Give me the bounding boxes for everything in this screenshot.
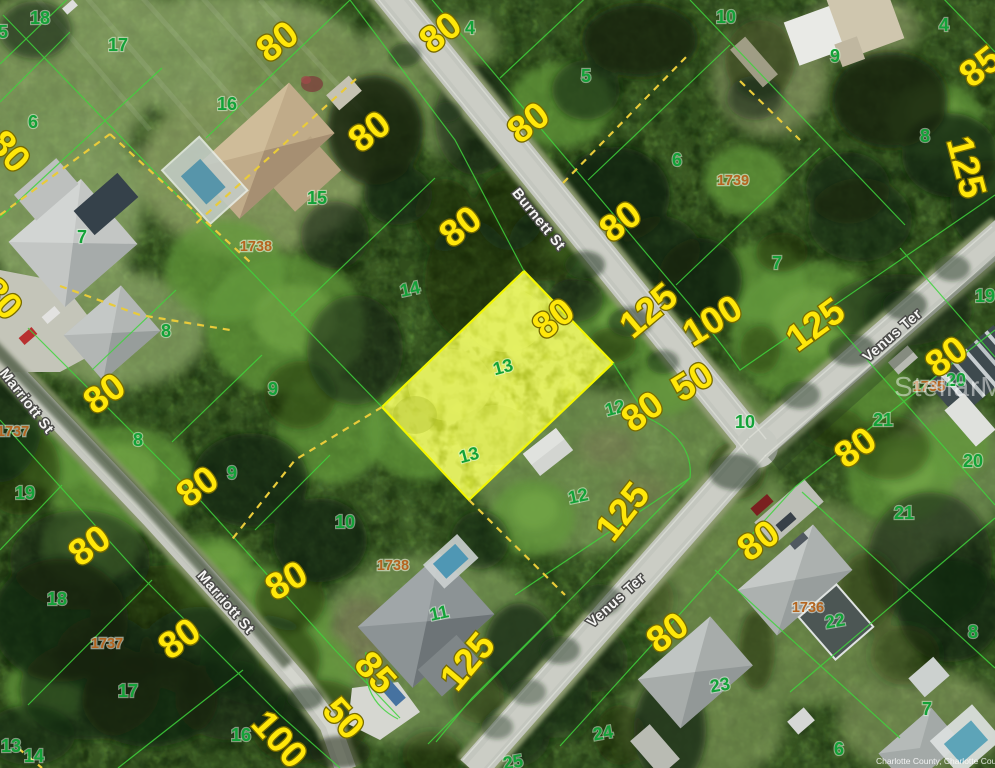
svg-text:8: 8 bbox=[920, 126, 930, 146]
svg-text:10: 10 bbox=[335, 512, 355, 532]
svg-text:5: 5 bbox=[0, 22, 8, 42]
svg-text:19: 19 bbox=[975, 286, 995, 306]
svg-text:9: 9 bbox=[830, 46, 840, 66]
svg-text:11: 11 bbox=[428, 601, 451, 625]
svg-text:8: 8 bbox=[133, 430, 143, 450]
svg-text:9: 9 bbox=[227, 463, 237, 483]
svg-text:StellarMLS: StellarMLS bbox=[894, 371, 995, 402]
svg-text:Charlotte County, Charlotte Co: Charlotte County, Charlotte County, GIS bbox=[876, 756, 995, 766]
svg-text:24: 24 bbox=[591, 721, 614, 744]
svg-text:7: 7 bbox=[772, 253, 782, 273]
svg-text:14: 14 bbox=[398, 277, 422, 301]
svg-text:7: 7 bbox=[77, 227, 87, 247]
svg-text:17: 17 bbox=[118, 681, 138, 701]
svg-text:1737: 1737 bbox=[0, 424, 29, 440]
svg-text:15: 15 bbox=[307, 188, 327, 208]
svg-text:17: 17 bbox=[108, 35, 128, 55]
svg-text:23: 23 bbox=[708, 673, 731, 696]
svg-text:25: 25 bbox=[501, 750, 524, 768]
svg-text:18: 18 bbox=[47, 589, 67, 609]
svg-text:16: 16 bbox=[217, 94, 237, 114]
svg-text:1738: 1738 bbox=[377, 558, 409, 574]
svg-text:4: 4 bbox=[939, 15, 949, 35]
svg-text:21: 21 bbox=[894, 503, 914, 523]
svg-text:7: 7 bbox=[922, 699, 932, 719]
svg-text:19: 19 bbox=[15, 483, 35, 503]
svg-text:6: 6 bbox=[672, 150, 682, 170]
svg-text:21: 21 bbox=[873, 410, 893, 430]
svg-text:1739: 1739 bbox=[717, 173, 749, 189]
svg-text:9: 9 bbox=[268, 379, 278, 399]
svg-text:1737: 1737 bbox=[91, 636, 123, 652]
svg-text:12: 12 bbox=[566, 484, 590, 508]
svg-text:8: 8 bbox=[968, 622, 978, 642]
svg-text:10: 10 bbox=[735, 412, 755, 432]
svg-text:6: 6 bbox=[28, 112, 38, 132]
svg-text:6: 6 bbox=[834, 739, 844, 759]
svg-text:18: 18 bbox=[30, 8, 50, 28]
svg-text:5: 5 bbox=[581, 66, 591, 86]
svg-text:10: 10 bbox=[716, 7, 736, 27]
svg-text:1738: 1738 bbox=[240, 239, 272, 255]
svg-text:22: 22 bbox=[823, 609, 846, 632]
svg-text:13: 13 bbox=[1, 736, 21, 756]
svg-text:8: 8 bbox=[161, 321, 171, 341]
svg-text:1736: 1736 bbox=[792, 600, 824, 616]
svg-text:20: 20 bbox=[963, 451, 983, 471]
svg-text:14: 14 bbox=[24, 746, 44, 766]
